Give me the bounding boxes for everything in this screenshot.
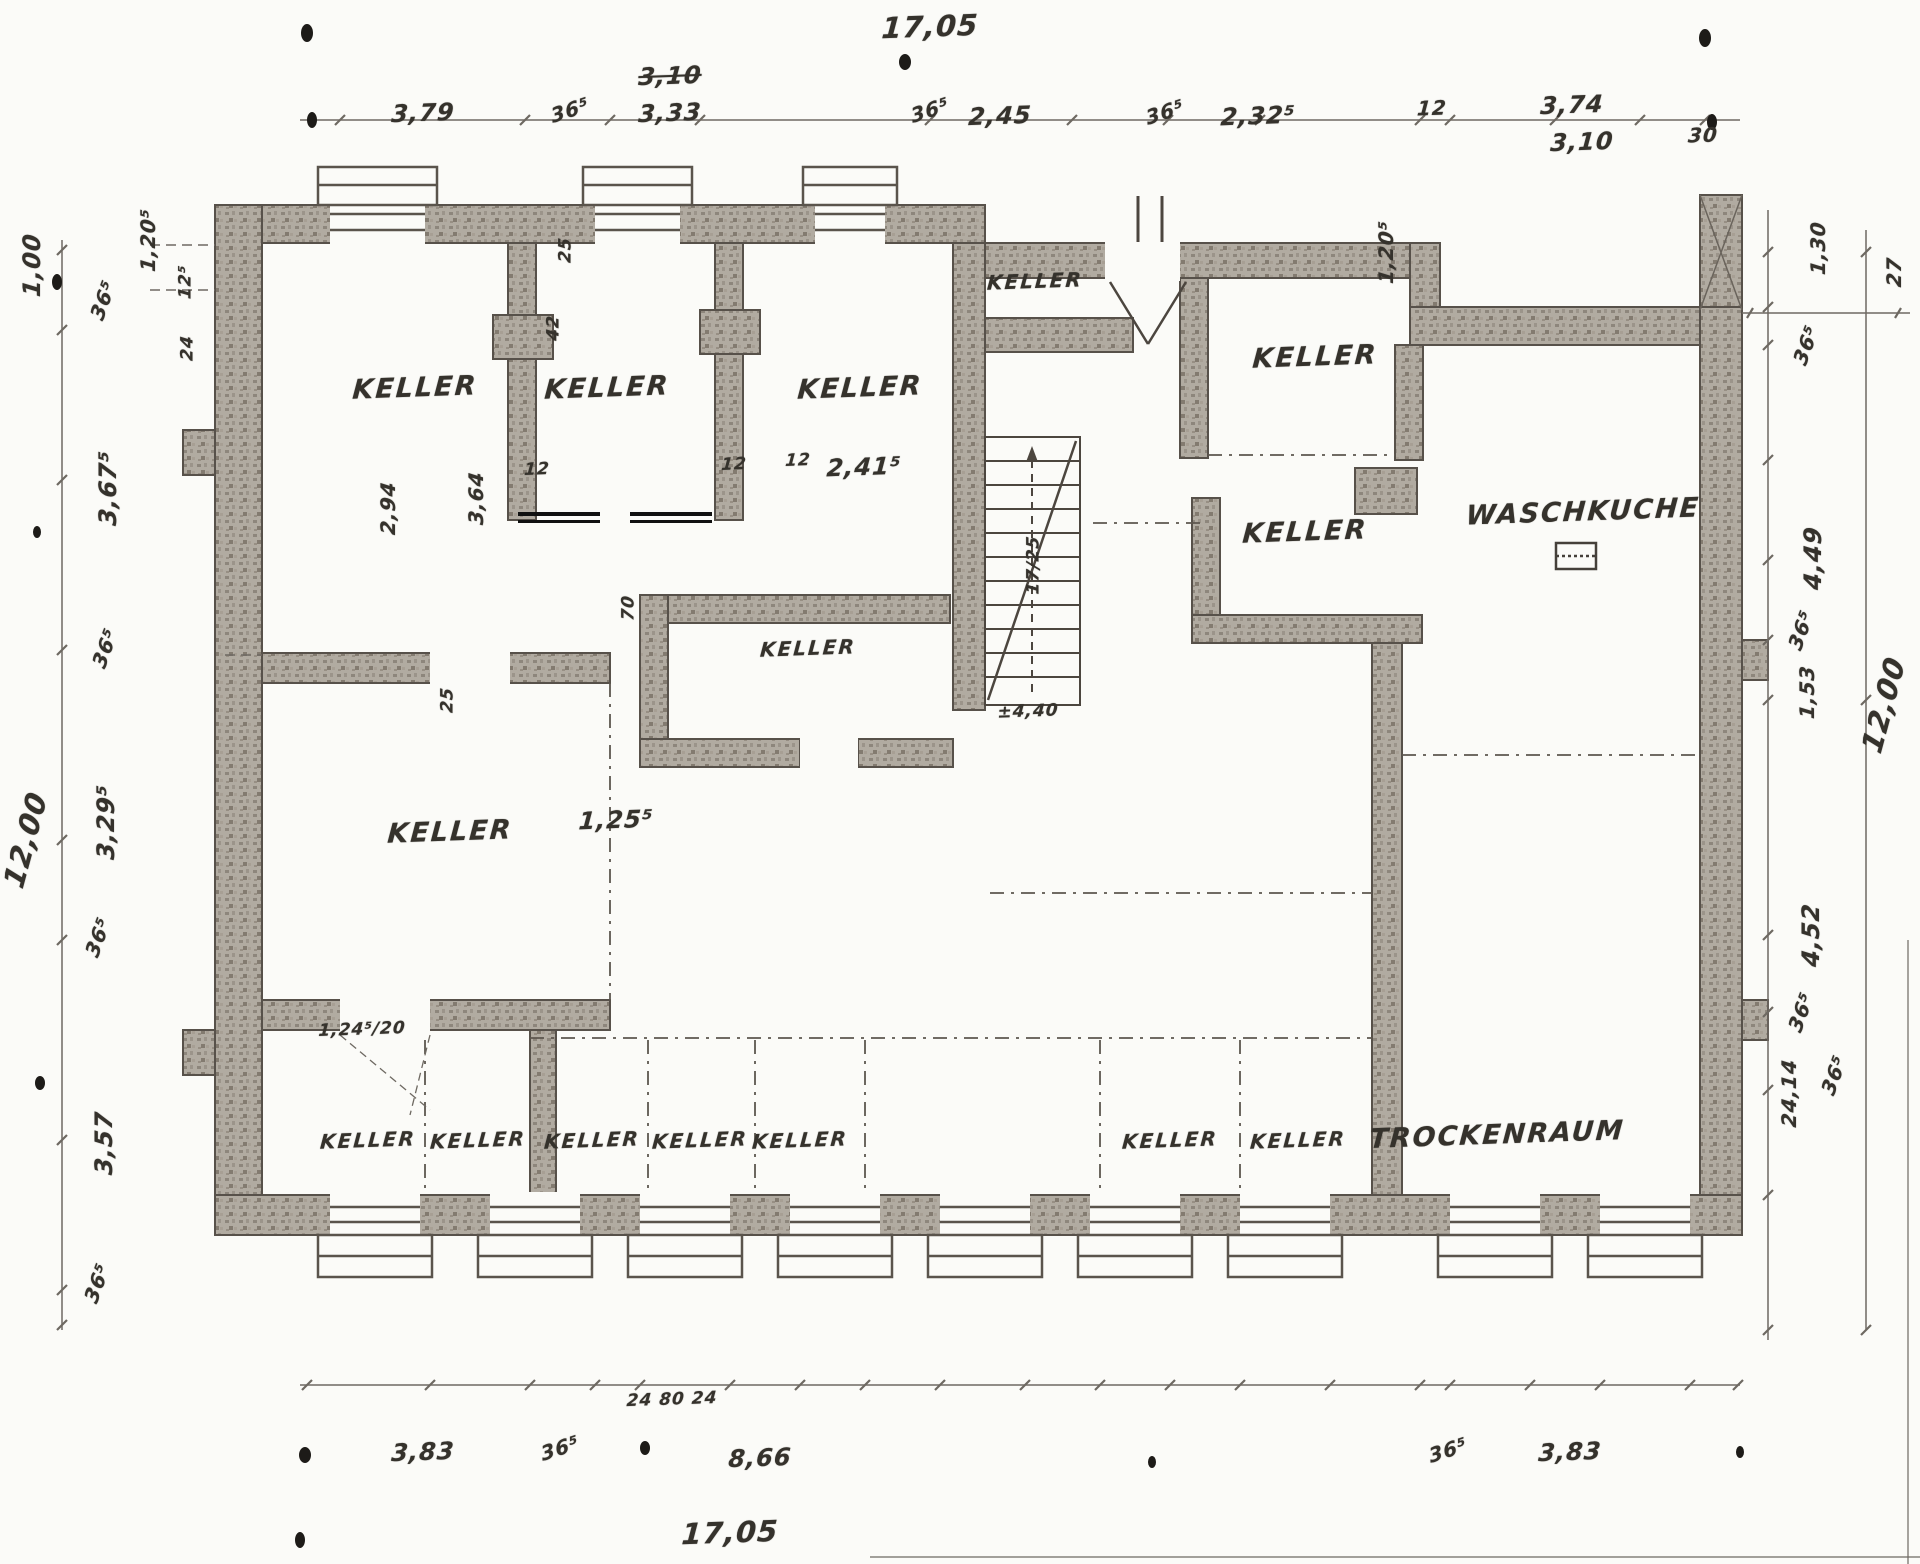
dimension-label: 3,10 xyxy=(1550,129,1615,155)
dimension-label: 27 xyxy=(1884,256,1904,288)
scan-dots xyxy=(33,24,1744,1548)
dimension-label: 2,45 xyxy=(968,103,1033,129)
dimension-label: 25 xyxy=(440,686,457,713)
room-label: KELLER xyxy=(986,269,1083,292)
dimension-label: 3,57 xyxy=(92,1110,116,1176)
dimension-label: 42 xyxy=(546,314,563,341)
dimension-label: 30 xyxy=(1687,124,1718,145)
dimension-label: 24 xyxy=(180,334,197,361)
dimension-label: 3,83 xyxy=(1538,1439,1603,1465)
room-label: KELLER xyxy=(1242,516,1369,547)
room-label: KELLER xyxy=(429,1128,526,1151)
dimension-label: 1,00 xyxy=(20,232,44,298)
floor-plan-sheet: KELLER KELLER KELLER KELLER KELLER KELLE… xyxy=(0,0,1920,1564)
room-label: KELLER xyxy=(352,372,479,403)
room-label: KELLER xyxy=(1252,341,1379,372)
dimension-label: 4,49 xyxy=(1801,525,1825,591)
room-label: KELLER xyxy=(1121,1128,1218,1151)
room-label: KELLER xyxy=(543,1128,640,1151)
dimension-label: 8,66 xyxy=(728,1445,793,1471)
dimension-label: 17,05 xyxy=(681,1517,780,1549)
room-label-waschkuche: WASCHKUCHE xyxy=(1465,494,1701,529)
room-label: KELLER xyxy=(651,1128,748,1151)
dimension-label: 2,32⁵ xyxy=(1220,103,1296,130)
dimension-label: 70 xyxy=(621,594,638,621)
room-label: KELLER xyxy=(759,636,856,659)
dimension-label: 3,79 xyxy=(391,100,456,126)
dimension-label: 24 80 24 xyxy=(626,1390,718,1410)
dimension-label: 3,10 xyxy=(638,63,703,89)
dimension-label: 17,05 xyxy=(881,11,980,43)
walls xyxy=(183,195,1768,1235)
dimension-label: 4,52 xyxy=(1799,902,1823,968)
room-label: KELLER xyxy=(387,816,514,847)
dimension-label: 1,24⁵/20 xyxy=(318,1020,406,1040)
room-label: KELLER xyxy=(797,372,924,403)
dimension-label: 2,41⁵ xyxy=(826,454,902,481)
dimension-label: 12 xyxy=(524,461,551,479)
dimension-label: 3,83 xyxy=(391,1439,456,1465)
dimension-label: 3,33 xyxy=(638,100,703,126)
dimension-label: 12 xyxy=(785,452,812,470)
dimension-label: 1,53 xyxy=(1797,664,1817,719)
dimension-label: ±4,40 xyxy=(997,702,1059,721)
dimension-label: 1,30 xyxy=(1808,220,1828,275)
room-label: KELLER xyxy=(751,1128,848,1151)
appliance-symbol xyxy=(1556,543,1596,569)
dimension-label: 1,25⁵ xyxy=(578,807,654,834)
dimension-label: 3,67⁵ xyxy=(96,449,120,526)
floor-plan-drawing xyxy=(0,0,1920,1564)
dimension-label: 3,64 xyxy=(466,470,486,525)
dimension-label: 12 xyxy=(721,456,748,474)
dimension-label: 2,94 xyxy=(378,480,398,535)
dimension-label: 12 xyxy=(1416,97,1447,118)
dimension-label: 3,29⁵ xyxy=(94,783,118,860)
room-label: KELLER xyxy=(319,1128,416,1151)
dimension-label: 1,20⁵ xyxy=(1376,219,1396,284)
dimension-label: 3,74 xyxy=(1540,92,1605,118)
room-label: KELLER xyxy=(544,372,671,403)
dimension-label: 24,14 xyxy=(1779,1058,1799,1128)
stair-pitch-label: 17/25 xyxy=(1026,535,1043,595)
dimension-label: 1,20⁵ xyxy=(138,207,158,272)
room-label: KELLER xyxy=(1249,1128,1346,1151)
dimension-label: 25 xyxy=(558,236,575,263)
dimension-label: 12⁵ xyxy=(178,264,195,300)
door-lintels xyxy=(518,512,712,523)
wall-openings xyxy=(340,240,1180,1033)
